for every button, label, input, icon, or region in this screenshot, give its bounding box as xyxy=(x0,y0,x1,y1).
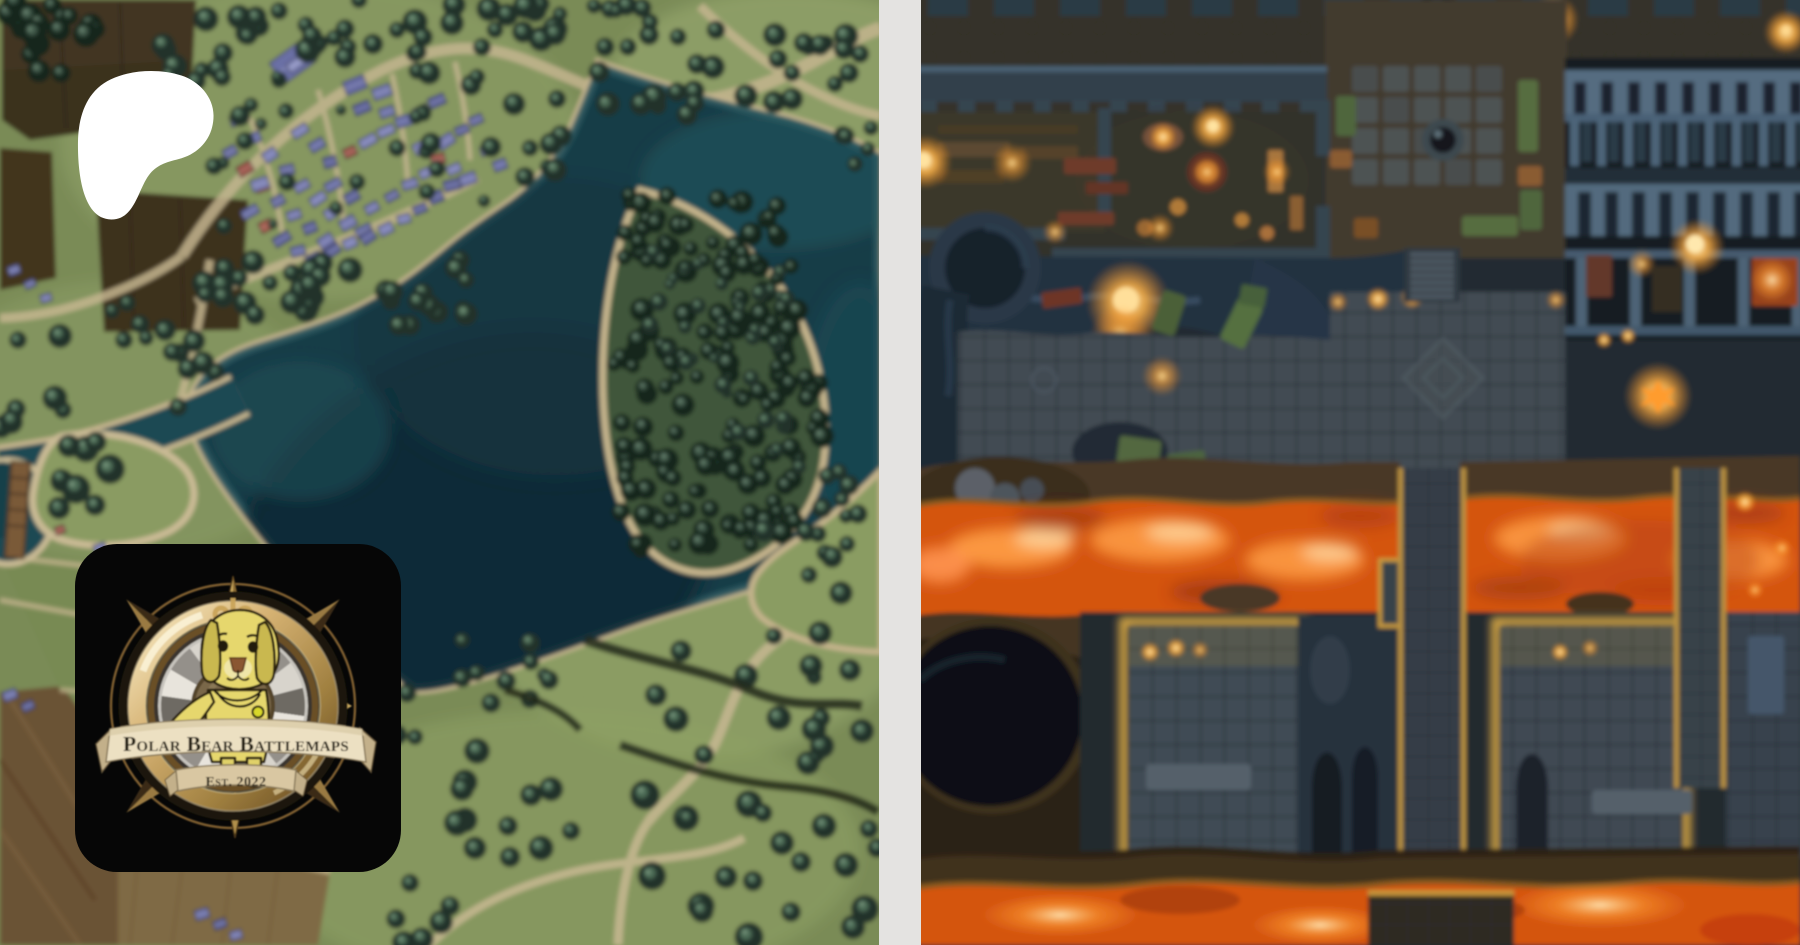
svg-text:Polar Bear Battlemaps: Polar Bear Battlemaps xyxy=(123,732,349,756)
svg-text:Est. 2022: Est. 2022 xyxy=(205,775,266,790)
